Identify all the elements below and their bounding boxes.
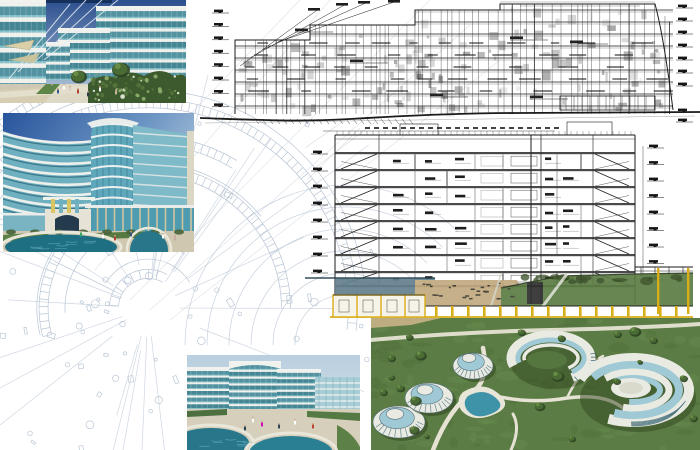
level-marker-icon <box>676 44 693 47</box>
banner <box>59 199 63 213</box>
glass-building <box>277 369 321 409</box>
banner <box>67 199 71 213</box>
level-marker-icon <box>311 236 328 239</box>
level-marker-icon <box>676 83 693 86</box>
level-marker-icon <box>311 253 328 256</box>
level-marker-icon <box>647 244 664 247</box>
level-marker-icon <box>311 168 328 171</box>
level-marker-icon <box>212 77 229 80</box>
level-marker-icon <box>676 57 693 60</box>
level-marker-icon <box>212 90 229 93</box>
level-marker-icon <box>212 50 229 53</box>
section-drawing <box>305 118 700 320</box>
level-marker-icon <box>647 194 664 197</box>
render-aerial-photo <box>371 318 700 450</box>
level-marker-icon <box>311 185 328 188</box>
presentation-board <box>0 0 700 450</box>
level-marker-icon <box>647 227 664 230</box>
level-marker-icon <box>311 270 328 273</box>
level-marker-icon <box>311 219 328 222</box>
level-marker-icon <box>647 161 664 164</box>
level-marker-icon <box>676 70 693 73</box>
level-marker-icon <box>212 63 229 66</box>
render-terrace-pools-photo <box>187 355 360 450</box>
elevation-drawing <box>200 0 700 130</box>
level-marker-icon <box>212 36 229 39</box>
level-marker-icon <box>212 10 229 13</box>
level-marker-icon <box>647 260 664 263</box>
level-marker-icon <box>676 5 693 8</box>
render-courtyard-pool-photo <box>3 113 194 252</box>
level-marker-icon <box>647 145 664 148</box>
render-promenade-photo <box>0 0 186 103</box>
level-marker-icon <box>647 178 664 181</box>
level-marker-icon <box>311 202 328 205</box>
level-marker-icon <box>212 23 229 26</box>
level-marker-icon <box>676 18 693 21</box>
glass-building <box>229 361 281 411</box>
level-marker-icon <box>647 211 664 214</box>
level-marker-icon <box>676 31 693 34</box>
level-marker-icon <box>311 151 328 154</box>
banner <box>51 199 55 213</box>
banner <box>75 199 79 213</box>
fan-building <box>580 358 696 432</box>
level-marker-icon <box>212 103 229 106</box>
